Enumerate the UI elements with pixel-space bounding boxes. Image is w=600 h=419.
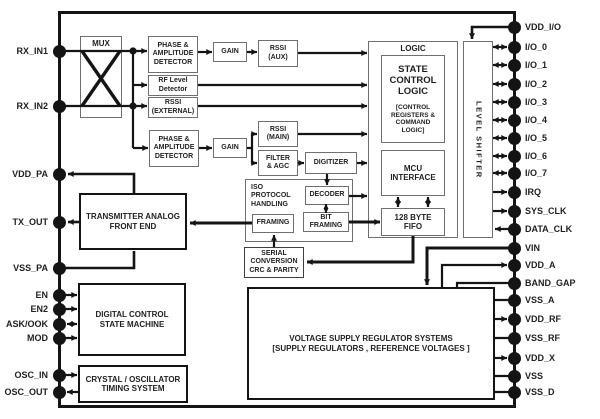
block-label-line: MCU (404, 164, 422, 173)
block-label-line: GAIN (221, 48, 239, 56)
right-pin-11 (508, 223, 521, 236)
right-pin-19 (508, 370, 521, 383)
left-pin-label-1: RX_IN2 (0, 101, 48, 112)
block-rssi-aux: RSSI(AUX) (258, 40, 298, 67)
block-label-line: FRAMING (310, 222, 343, 230)
right-pin-label-3: I/O_2 (525, 79, 597, 90)
right-pin-15 (508, 294, 521, 307)
left-pin-label-3: TX_OUT (0, 217, 48, 228)
block-label-line: INTERFACE (390, 173, 435, 182)
right-pin-4 (508, 96, 521, 109)
left-pin-label-9: OSC_IN (0, 370, 48, 381)
left-pin-label-8: MOD (0, 333, 48, 344)
right-pin-6 (508, 132, 521, 145)
block-voltage: VOLTAGE SUPPLY REGULATOR SYSTEMS[SUPPLY … (247, 287, 495, 400)
block-decoder: DECODER (305, 186, 349, 205)
block-label-line: RSSI (165, 99, 181, 107)
block-rssi-main: RSSI(MAIN) (258, 121, 298, 147)
left-pin-6 (53, 303, 66, 316)
right-pin-3 (508, 78, 521, 91)
right-pin-label-10: SYS_CLK (525, 206, 597, 217)
block-label-line: (AUX) (268, 54, 287, 62)
right-pin-14 (508, 277, 521, 290)
block-label-line: FRONT END (110, 222, 157, 231)
block-fifo: 128 BYTEFIFO (381, 208, 445, 236)
block-filter-agc: FILTER& AGC (258, 150, 298, 176)
block-label-line: HANDLING (251, 201, 288, 209)
left-pin-label-4: VSS_PA (0, 263, 48, 274)
block-label-line: CONVERSION (250, 258, 297, 266)
right-pin-12 (508, 242, 521, 255)
block-label-line: [SUPPLY REGULATORS , REFERENCE VOLTAGES … (272, 344, 469, 353)
right-pin-label-13: VDD_A (525, 260, 597, 271)
right-pin-label-1: I/O_0 (525, 42, 597, 53)
block-phase-amp-main: PHASE &AMPLITUDEDETECTOR (149, 130, 199, 167)
block-label-line: CONTROL (390, 75, 437, 86)
left-pin-7 (53, 318, 66, 331)
left-pin-label-5: EN (0, 290, 48, 301)
block-label-line: CRYSTAL / OSCILLATOR (86, 375, 181, 384)
right-pin-0 (508, 21, 521, 34)
right-pin-label-0: VDD_I/O (525, 22, 597, 33)
right-pin-2 (508, 59, 521, 72)
left-pin-label-10: OSC_OUT (0, 387, 48, 398)
right-pin-16 (508, 313, 521, 326)
block-gain-top: GAIN (213, 42, 247, 62)
right-pin-20 (508, 386, 521, 399)
right-pin-13 (508, 259, 521, 272)
block-transmitter: TRANSMITTER ANALOGFRONT END (79, 193, 187, 250)
block-label-line: PROTOCOL (251, 192, 291, 200)
right-pin-label-19: VSS (525, 371, 597, 382)
block-label-line: (EXTERNAL) (152, 108, 194, 116)
right-pin-5 (508, 114, 521, 127)
left-pin-4 (53, 262, 66, 275)
right-pin-label-5: I/O_4 (525, 115, 597, 126)
block-label-line: VOLTAGE SUPPLY REGULATOR SYSTEMS (289, 334, 452, 343)
left-pin-3 (53, 216, 66, 229)
left-pin-label-2: VDD_PA (0, 169, 48, 180)
right-pin-label-7: I/O_6 (525, 151, 597, 162)
block-crystal: CRYSTAL / OSCILLATORTIMING SYSTEM (78, 365, 188, 403)
block-label-line: Detector (159, 86, 187, 94)
block-label-line: LOGIC (398, 86, 428, 97)
left-pin-10 (53, 386, 66, 399)
block-framing: FRAMING (252, 214, 294, 233)
block-label-line: (MAIN) (267, 134, 290, 142)
block-label-line: STATE (398, 64, 428, 75)
right-pin-8 (508, 167, 521, 180)
block-label-line: AMPLITUDE (153, 50, 194, 58)
block-label-line: TRANSMITTER ANALOG (86, 212, 180, 221)
block-serial-conversion: SERIALCONVERSIONCRC & PARITY (244, 247, 304, 278)
block-label-line: FRAMING (257, 219, 290, 227)
block-label-line: GAIN (221, 144, 239, 152)
block-bit-framing: BITFRAMING (303, 212, 349, 232)
left-pin-9 (53, 369, 66, 382)
left-pin-2 (53, 168, 66, 181)
block-label-line: LOGIC (400, 44, 425, 53)
left-pin-8 (53, 332, 66, 345)
block-label-line: DETECTOR (154, 59, 192, 67)
block-label-line: DETECTOR (155, 153, 193, 161)
right-pin-label-17: VSS_RF (525, 333, 597, 344)
block-dcsm: DIGITAL CONTROLSTATE MACHINE (78, 283, 186, 356)
block-label-line: & AGC (267, 163, 289, 171)
block-label-line: DIGITAL CONTROL (95, 310, 168, 319)
block-state-control: STATECONTROLLOGIC[CONTROLREGISTERS &COMM… (381, 55, 445, 143)
block-sublabel-line: [CONTROL (396, 104, 430, 112)
right-pin-label-18: VDD_X (525, 353, 597, 364)
block-label-line: FIFO (404, 222, 422, 231)
block-sublabel-line: LOGIC] (402, 127, 425, 135)
right-pin-label-16: VDD_RF (525, 314, 597, 325)
right-pin-label-12: VIN (525, 243, 597, 254)
right-pin-label-8: I/O_7 (525, 168, 597, 179)
block-sublabel-line: COMMAND (396, 119, 431, 127)
block-label-line: CRC & PARITY (249, 267, 298, 275)
block-label-line: BIT (320, 214, 331, 222)
block-label-line: AMPLITUDE (154, 144, 195, 152)
block-label-line: PHASE & (158, 136, 189, 144)
block-label-line: RSSI (270, 45, 286, 53)
block-label-line: RSSI (270, 126, 286, 134)
right-pin-17 (508, 332, 521, 345)
left-pin-5 (53, 289, 66, 302)
block-mcu-interface: MCUINTERFACE (381, 150, 445, 196)
block-label-line: PHASE & (157, 42, 188, 50)
block-rf-level: RF LevelDetector (148, 75, 198, 96)
block-digitizer: DIGITIZER (305, 152, 357, 174)
left-pin-label-7: ASK/OOK (0, 319, 48, 330)
right-pin-label-9: IRQ (525, 187, 597, 198)
block-phase-amp-top: PHASE &AMPLITUDEDETECTOR (148, 36, 198, 73)
block-label-line: MUX (92, 39, 110, 48)
right-pin-label-11: DATA_CLK (525, 224, 597, 235)
left-pin-0 (53, 45, 66, 58)
block-label-line: DECODER (309, 191, 344, 199)
block-level-shifter: LEVEL SHIFTER (463, 41, 493, 238)
left-pin-1 (53, 100, 66, 113)
block-gain-main: GAIN (213, 138, 247, 158)
block-label-line: FILTER (266, 155, 290, 163)
block-label-line: DIGITIZER (314, 159, 349, 167)
block-label-line: 128 BYTE (395, 213, 432, 222)
right-pin-label-15: VSS_A (525, 295, 597, 306)
right-pin-1 (508, 41, 521, 54)
right-pin-10 (508, 205, 521, 218)
block-rssi-external: RSSI(EXTERNAL) (148, 97, 198, 118)
right-pin-label-20: VSS_D (525, 387, 597, 398)
right-pin-7 (508, 150, 521, 163)
ic-block-diagram: MUXPHASE &AMPLITUDEDETECTORGAINRSSI(AUX)… (0, 0, 600, 419)
block-label-line: ISO (251, 184, 263, 192)
block-sublabel-line: REGISTERS & (391, 112, 435, 120)
right-pin-18 (508, 352, 521, 365)
block-label-line: STATE MACHINE (100, 320, 165, 329)
right-pin-label-2: I/O_1 (525, 60, 597, 71)
right-pin-label-6: I/O_5 (525, 133, 597, 144)
block-label-line: SERIAL (261, 250, 287, 258)
left-pin-label-6: EN2 (0, 304, 48, 315)
left-pin-label-0: RX_IN1 (0, 46, 48, 57)
right-pin-9 (508, 186, 521, 199)
right-pin-label-4: I/O_3 (525, 97, 597, 108)
block-label-line: TIMING SYSTEM (101, 384, 164, 393)
right-pin-label-14: BAND_GAP (525, 278, 597, 289)
block-mux: MUX (80, 36, 122, 118)
block-label-line: LEVEL SHIFTER (474, 101, 483, 179)
block-label-line: RF Level (158, 77, 187, 85)
